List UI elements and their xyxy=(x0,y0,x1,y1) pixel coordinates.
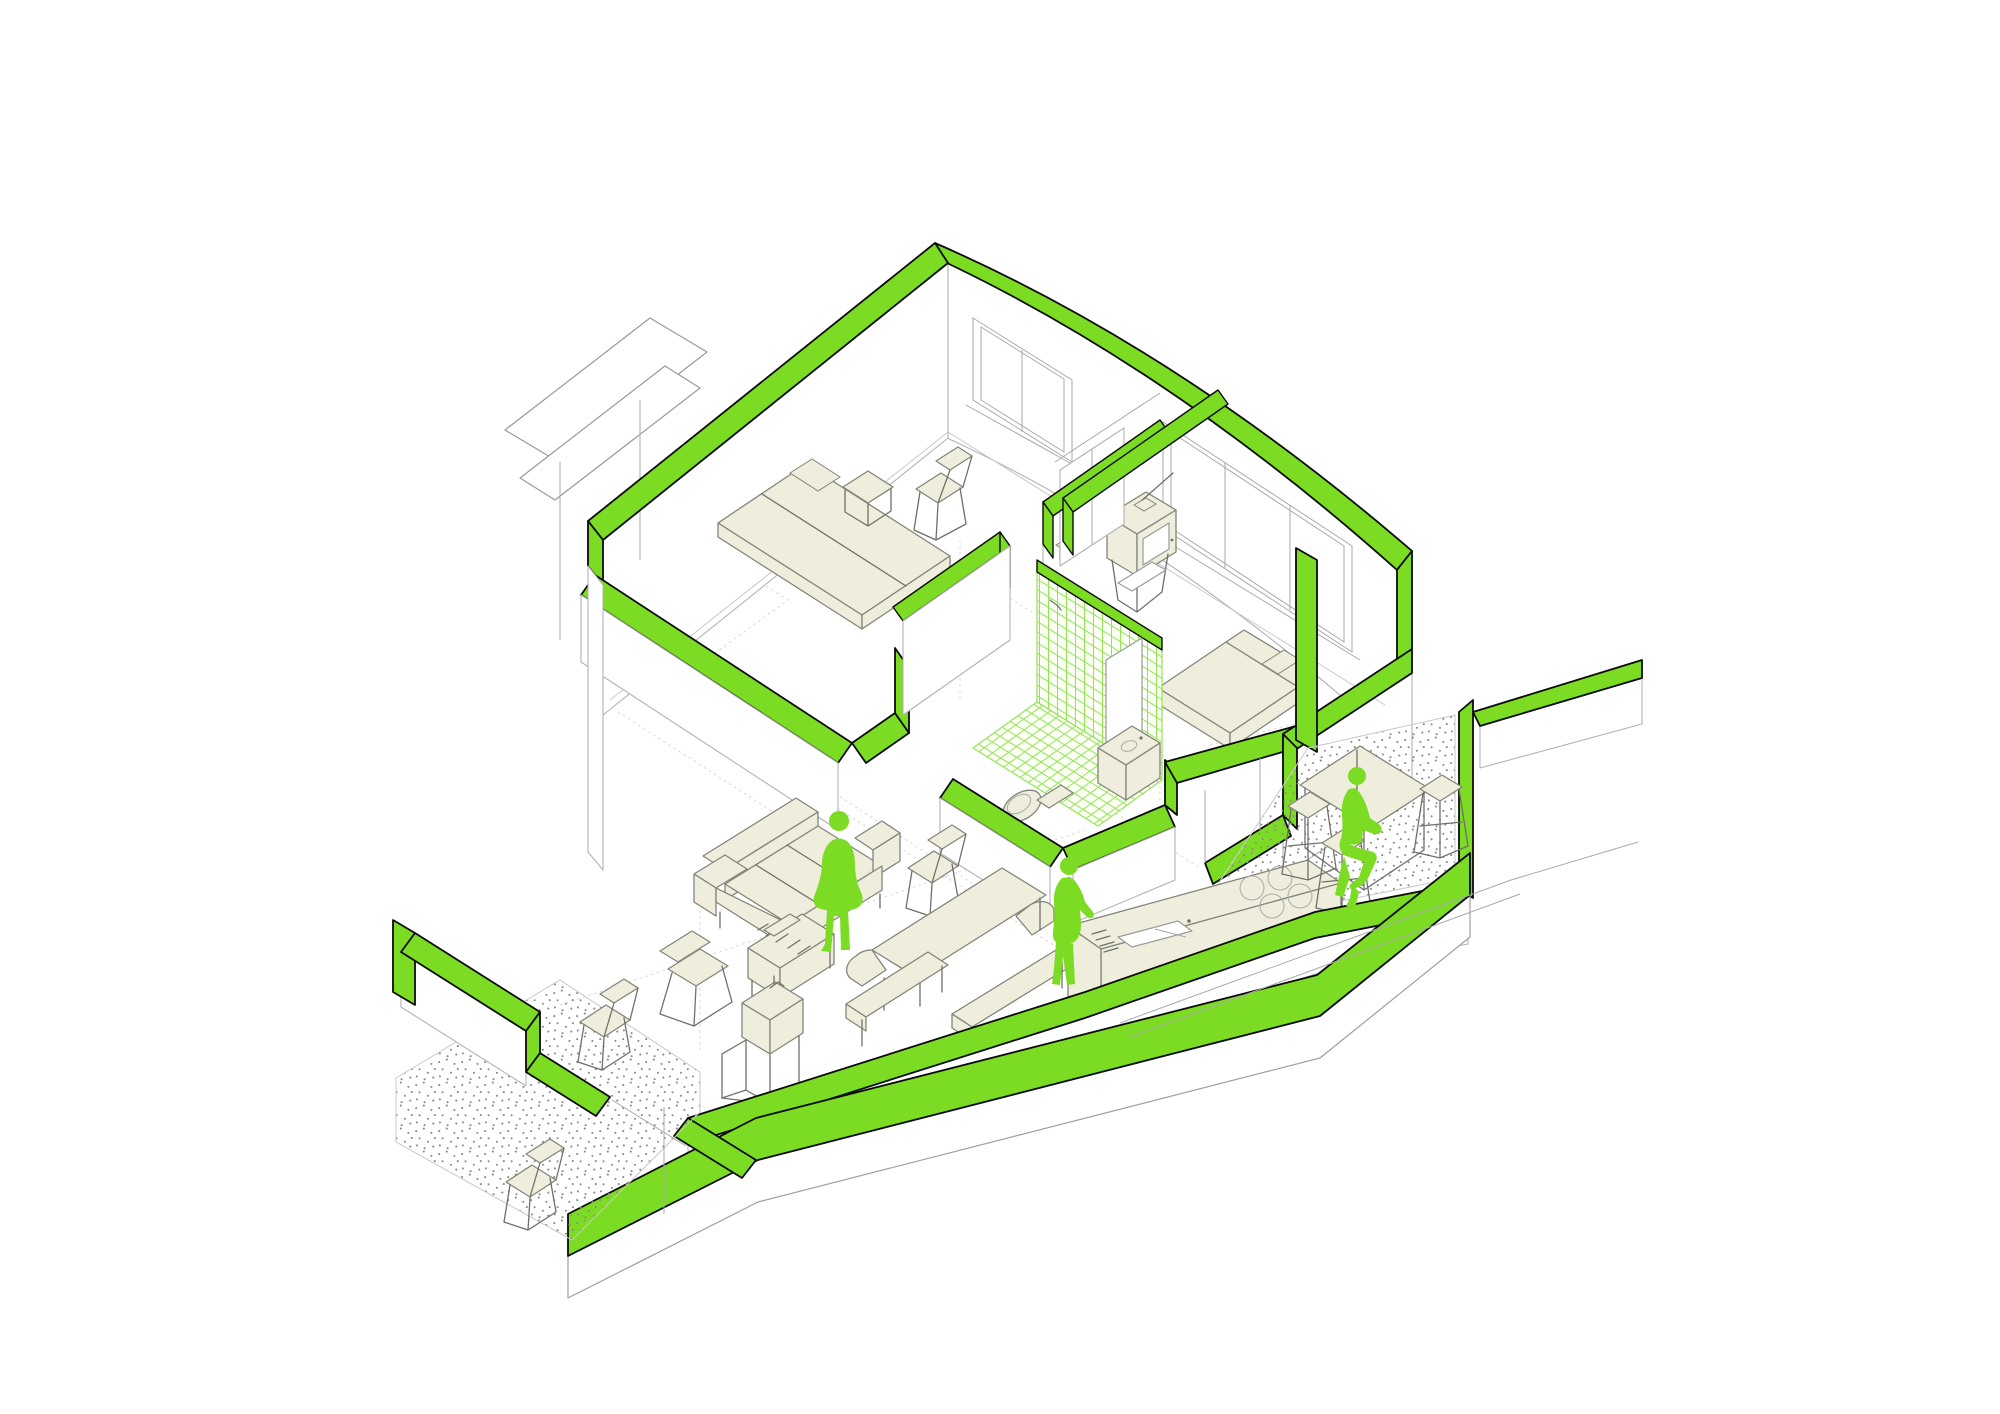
armchair xyxy=(660,931,732,1026)
table-top xyxy=(872,868,1046,977)
west-wall-face xyxy=(588,566,603,870)
chair-back xyxy=(936,447,972,470)
head xyxy=(1060,857,1078,875)
faucet xyxy=(1187,919,1191,923)
cut-wall-cap xyxy=(393,920,415,1005)
diagram-canvas: Axonometric cutaway diagram of a small a… xyxy=(0,0,2000,1414)
head xyxy=(829,811,849,831)
tv-knob xyxy=(1171,539,1174,542)
chair-back xyxy=(600,979,638,1003)
faucet xyxy=(1139,736,1142,739)
slab-edge-line xyxy=(1511,842,1638,880)
cut-wall-terrace-cap xyxy=(1296,548,1317,752)
desk-chairs xyxy=(914,447,972,540)
head xyxy=(1348,767,1366,785)
apartment-axonometric-diagram: Axonometric cutaway diagram of a small a… xyxy=(0,0,2000,1414)
